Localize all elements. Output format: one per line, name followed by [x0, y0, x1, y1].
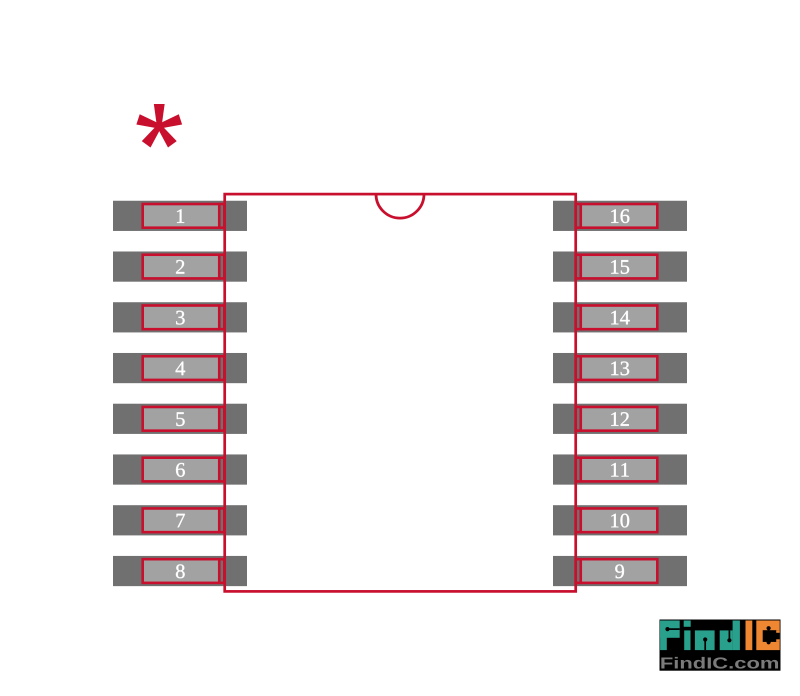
- svg-text:FindIC.com: FindIC.com: [660, 655, 780, 672]
